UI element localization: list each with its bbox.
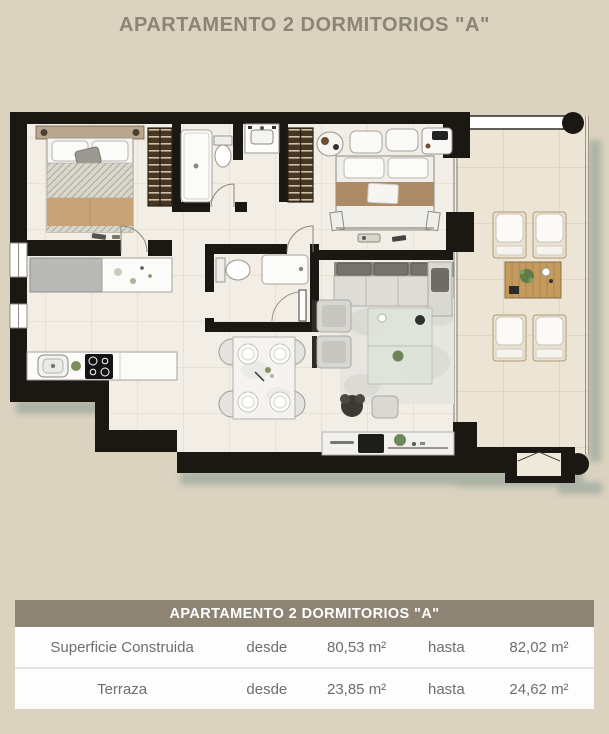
headboard-bench-2 (386, 129, 418, 151)
row-to-value: 24,62 m² (484, 681, 594, 698)
row-label: Superficie Construida (15, 639, 229, 656)
row-from-value: 80,53 m² (304, 639, 408, 656)
row-to-value: 82,02 m² (484, 639, 594, 656)
toilet-2 (216, 258, 250, 282)
wardrobe-bedroom-2 (288, 128, 313, 202)
terrace-railing (467, 116, 577, 129)
double-bed (47, 138, 133, 232)
summary-table: APARTAMENTO 2 DORMITORIOS "A" Superficie… (15, 600, 594, 709)
niche-column (567, 453, 589, 475)
wardrobe-master (148, 128, 172, 206)
table-row-terraza: Terraza desde 23,85 m² hasta 24,62 m² (15, 667, 594, 709)
nightstand-right (422, 128, 452, 154)
toilet (214, 136, 232, 167)
cooktop (85, 354, 113, 379)
pouf (372, 396, 398, 418)
kitchen-counter-top (30, 258, 172, 292)
shower-2 (262, 255, 308, 284)
summary-table-header: APARTAMENTO 2 DORMITORIOS "A" (15, 600, 594, 627)
sink-vanity (245, 124, 279, 153)
window-kitchen (10, 304, 27, 328)
row-to-label: hasta (409, 681, 484, 698)
double-bed-2 (330, 156, 440, 231)
row-from-label: desde (229, 681, 304, 698)
terrace-column (562, 112, 584, 134)
kitchen-counter-bottom (27, 352, 177, 380)
page: { "page": { "title": "APARTAMENTO 2 DORM… (0, 0, 609, 734)
row-from-value: 23,85 m² (304, 681, 408, 698)
headboard-bench-1 (350, 131, 382, 153)
summary-table-title: APARTAMENTO 2 DORMITORIOS "A" (170, 606, 440, 622)
row-label: Terraza (15, 681, 229, 698)
console-plant (394, 434, 406, 446)
table-row-superficie: Superficie Construida desde 80,53 m² has… (15, 627, 594, 667)
terrace-table (505, 262, 561, 298)
floorplan-svg (0, 0, 609, 560)
headboard-shelf (36, 126, 144, 139)
coffee-table (368, 308, 432, 384)
nightstand-left (317, 132, 343, 156)
tv-console (322, 432, 454, 455)
shower (181, 130, 212, 202)
kitchen-sink (38, 355, 68, 377)
floorplan (0, 0, 609, 560)
window-master-bedroom (10, 243, 27, 277)
row-from-label: desde (229, 639, 304, 656)
row-to-label: hasta (409, 639, 484, 656)
